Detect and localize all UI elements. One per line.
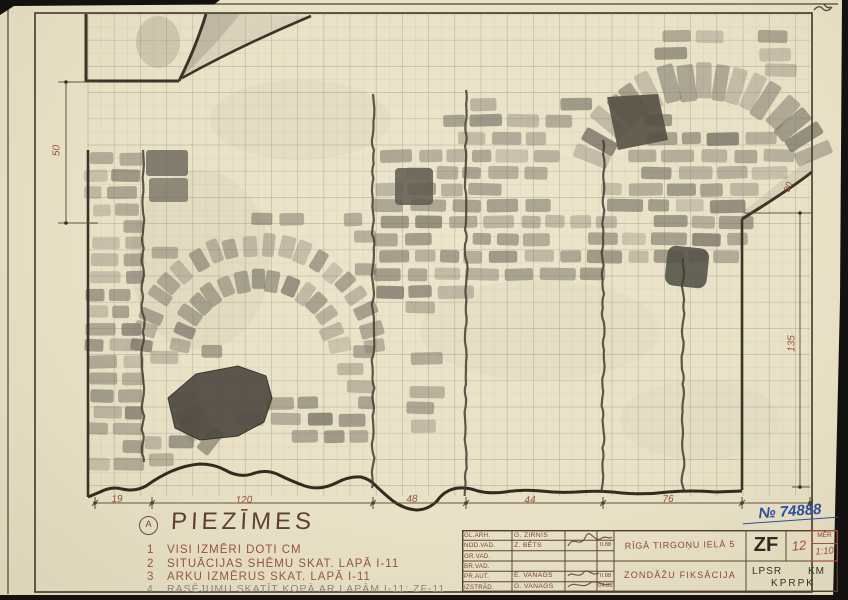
tb-row-label: BR.VAD. <box>464 563 490 570</box>
note-num: 2 <box>147 558 154 570</box>
tb-row-name: G. VANAGS <box>514 583 554 590</box>
tb-sheet-no: 12 <box>787 537 810 554</box>
tb-scale-value: 1:10 <box>812 545 838 558</box>
tb-row-label: NOD.VAD. <box>464 542 495 549</box>
notes-title: PIEZĪMES <box>170 508 315 536</box>
note-item: VISI IZMĒRI DOTI CM <box>167 544 302 556</box>
tb-row-name: E. VANAGS <box>514 572 553 579</box>
tb-row-date: 04.88 <box>597 583 614 589</box>
tb-row-date: II.88 <box>597 573 614 579</box>
note-item: RASĒJUMU SKATĪT KOPĀ AR LAPĀM I-11; ZF-1… <box>167 583 445 595</box>
tb-scale-label: MĒR <box>812 532 837 539</box>
wall-elevation-drawing <box>0 0 848 600</box>
dim-bottom-5: 76 <box>650 493 686 505</box>
tb-title: ZONDĀŽU FIKSĀCIJA <box>616 570 744 580</box>
tb-row-label: GL.ARH. <box>464 532 490 539</box>
dim-bottom-1: 19 <box>99 493 136 506</box>
tb-code: ZF <box>748 534 784 557</box>
tb-row-date: II.88 <box>597 542 614 548</box>
dim-left-height: 50 <box>52 136 63 166</box>
tb-row-name: Z. BĒTS <box>514 542 542 549</box>
corner-scribble <box>814 4 832 11</box>
note-item: ARKU IZMĒRUS SKAT. LAPĀ I-11 <box>167 571 371 583</box>
dim-bottom-3: 48 <box>394 493 431 506</box>
note-marker-circle: A <box>139 516 158 535</box>
tb-row-name: G. ZIRNIS <box>514 532 548 539</box>
dim-bottom-4: 44 <box>512 494 548 506</box>
note-num: 1 <box>147 544 154 556</box>
scanned-drawing-sheet: 19 120 48 44 76 50 135 30 A PIEZĪMES 1 V… <box>0 0 848 600</box>
dim-right-height: 135 <box>787 327 798 361</box>
dim-bottom-2: 120 <box>222 494 266 507</box>
tb-row-label: PR.AUT. <box>464 573 489 580</box>
tb-row-label: IZSTRĀD. <box>464 584 494 591</box>
note-item: SITUĀCIJAS SHĒMU SKAT. LAPĀ I-11 <box>167 558 399 570</box>
note-num: 4 <box>147 583 154 595</box>
tb-org-bottom: KPRPK <box>748 578 838 589</box>
tb-row-label: GR.VAD. <box>464 553 490 560</box>
tb-org-left: LPSR <box>752 566 782 577</box>
tb-org-right: KM <box>808 566 825 577</box>
note-num: 3 <box>147 571 154 583</box>
